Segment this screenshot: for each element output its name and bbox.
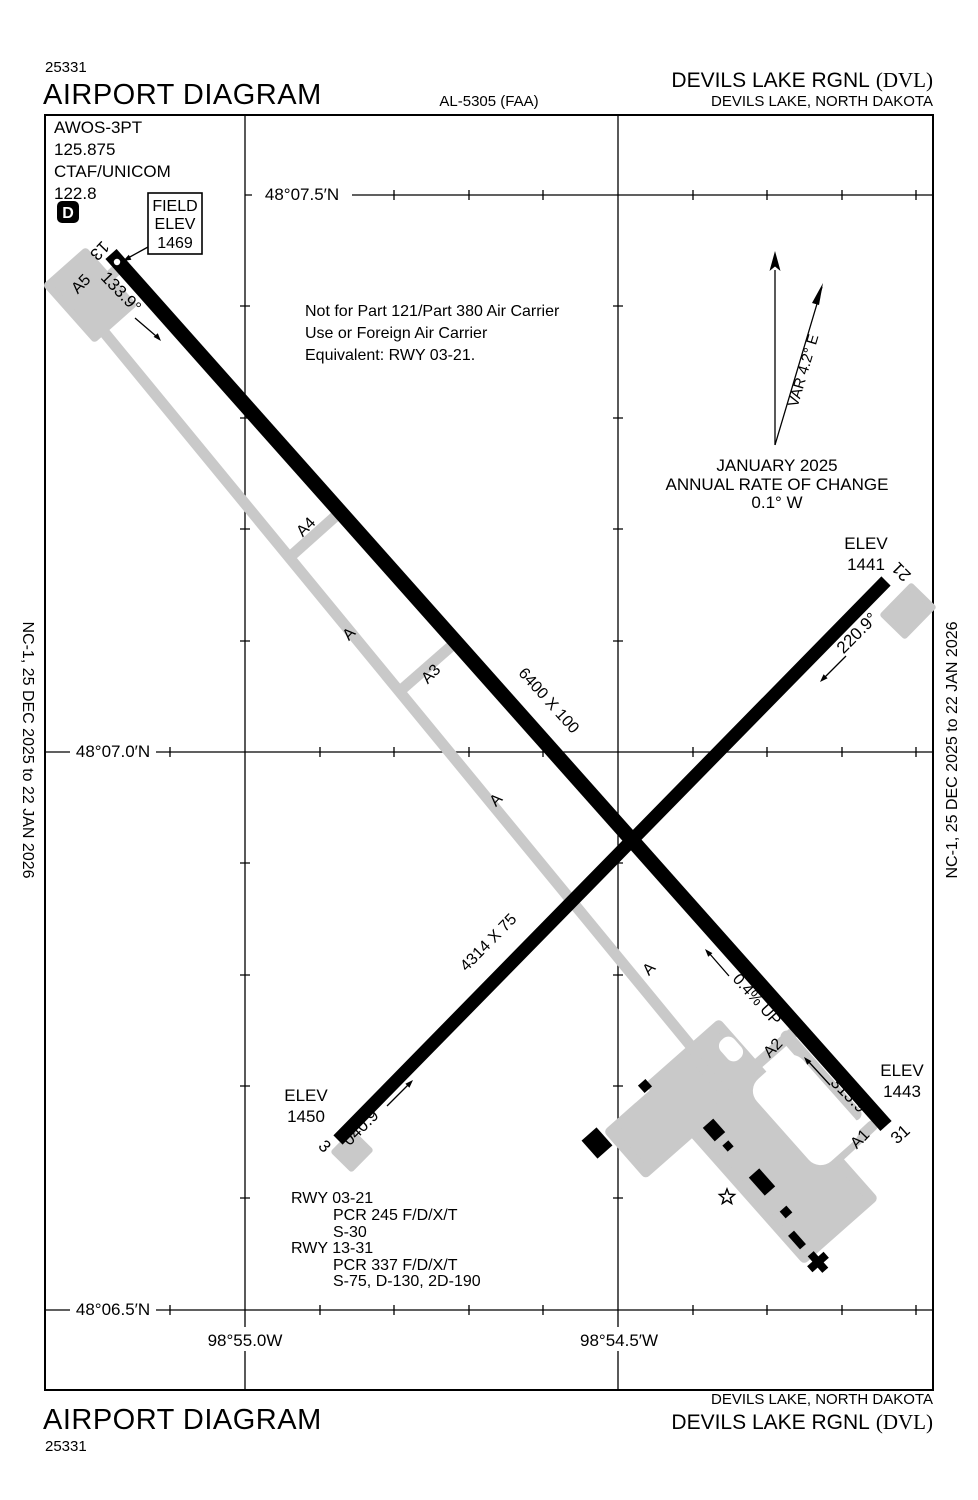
ctaf-frequency: 122.8 [54, 184, 97, 203]
latitude-label-north-1: 48°07.5′N [265, 185, 339, 204]
header-airport-icao: (DVL) [876, 68, 933, 92]
notice-line-3: Equivalent: RWY 03-21. [305, 347, 475, 364]
right-margin-edition-note: NC-1, 25 DEC 2025 to 22 JAN 2026 [944, 621, 961, 878]
elev-rwy31-label: ELEV [880, 1061, 924, 1080]
magnetic-variation-label: VAR 4.2° E [785, 332, 823, 409]
footer-title: AIRPORT DIAGRAM [43, 1404, 322, 1436]
header-chart-number: 25331 [45, 59, 87, 76]
elev-rwy31-value: 1443 [883, 1082, 921, 1101]
runway-number-3: 3 [315, 1136, 335, 1156]
elev-rwy21-label: ELEV [844, 534, 888, 553]
airport-diagram-page: 25331 AIRPORT DIAGRAM AL-5305 (FAA) DEVI… [0, 0, 978, 1500]
runway-data-line6: S-75, D-130, 2D-190 [333, 1273, 481, 1290]
latitude-label-north-3: 48°06.5′N [76, 1300, 150, 1319]
beacon-star-icon [719, 1189, 734, 1204]
awos-label: AWOS-3PT [54, 118, 142, 137]
footer-chart-number: 25331 [45, 1438, 87, 1455]
ctaf-label: CTAF/UNICOM [54, 162, 171, 181]
notice-line-1: Not for Part 121/Part 380 Air Carrier [305, 303, 560, 320]
field-elev-line2: ELEV [155, 216, 196, 233]
elev-rwy21-value: 1441 [847, 555, 885, 574]
runway-13-threshold-dot [114, 259, 120, 265]
field-elev-pointer-line [128, 247, 148, 258]
header-city-state: DEVILS LAKE, NORTH DAKOTA [711, 93, 933, 110]
header-al-ref: AL-5305 (FAA) [439, 93, 538, 110]
annual-rate-label: ANNUAL RATE OF CHANGE [666, 475, 889, 494]
variation-date: JANUARY 2025 [716, 456, 837, 475]
latitude-label-north-2: 48°07.0′N [76, 742, 150, 761]
elev-rwy3-label: ELEV [284, 1086, 328, 1105]
taxiway-label-a-south: A [640, 959, 660, 979]
header-airport-name-text: DEVILS LAKE RGNL [671, 69, 869, 92]
field-elevation-box: FIELD ELEV 1469 [123, 193, 202, 261]
header-airport-name: DEVILS LAKE RGNL(DVL) [671, 68, 933, 92]
airport-diagram-canvas: 25331 AIRPORT DIAGRAM AL-5305 (FAA) DEVI… [0, 0, 978, 1500]
field-elev-value: 1469 [157, 235, 193, 252]
runway-number-21: 21 [888, 558, 915, 585]
runup-pad-rwy21 [883, 586, 932, 636]
longitude-label-west-1: 98°55.0W [208, 1331, 283, 1350]
taxiway-a-parallel [90, 315, 690, 1045]
field-elev-line1: FIELD [152, 198, 197, 215]
longitude-label-west-2: 98°54.5′W [580, 1331, 658, 1350]
d-symbol-letter: D [62, 205, 74, 222]
runway-data-line3: S-30 [333, 1224, 367, 1241]
header-title: AIRPORT DIAGRAM [43, 79, 322, 111]
runway-data-line1: RWY 03-21 [291, 1190, 373, 1207]
annual-rate-value: 0.1° W [751, 493, 802, 512]
elevation-labels: ELEV 1441 ELEV 1450 ELEV 1443 [284, 534, 924, 1126]
true-north-arrowhead-icon [770, 251, 781, 271]
magnetic-north-half-arrowhead-icon [812, 283, 823, 305]
footer-airport-icao: (DVL) [876, 1410, 933, 1434]
compass-rose: VAR 4.2° E JANUARY 2025 ANNUAL RATE OF C… [666, 251, 889, 512]
runway-number-31: 31 [887, 1121, 914, 1148]
footer-airport-name-text: DEVILS LAKE RGNL [671, 1411, 869, 1434]
footer-city-state: DEVILS LAKE, NORTH DAKOTA [711, 1391, 933, 1408]
runway-data-block: RWY 03-21 PCR 245 F/D/X/T S-30 RWY 13-31… [291, 1190, 481, 1290]
air-carrier-notice: Not for Part 121/Part 380 Air Carrier Us… [305, 303, 560, 364]
runway-data-line2: PCR 245 F/D/X/T [333, 1207, 458, 1224]
taxiway-a4-connector [291, 514, 338, 556]
elev-rwy3-value: 1450 [287, 1107, 325, 1126]
runway-data-line5: PCR 337 F/D/X/T [333, 1257, 458, 1274]
notice-line-2: Use or Foreign Air Carrier [305, 325, 488, 342]
footer-airport-name: DEVILS LAKE RGNL(DVL) [671, 1410, 933, 1434]
left-margin-edition-note: NC-1, 25 DEC 2025 to 22 JAN 2026 [19, 621, 36, 878]
runway-data-line4: RWY 13-31 [291, 1240, 373, 1257]
awos-frequency: 125.875 [54, 140, 115, 159]
